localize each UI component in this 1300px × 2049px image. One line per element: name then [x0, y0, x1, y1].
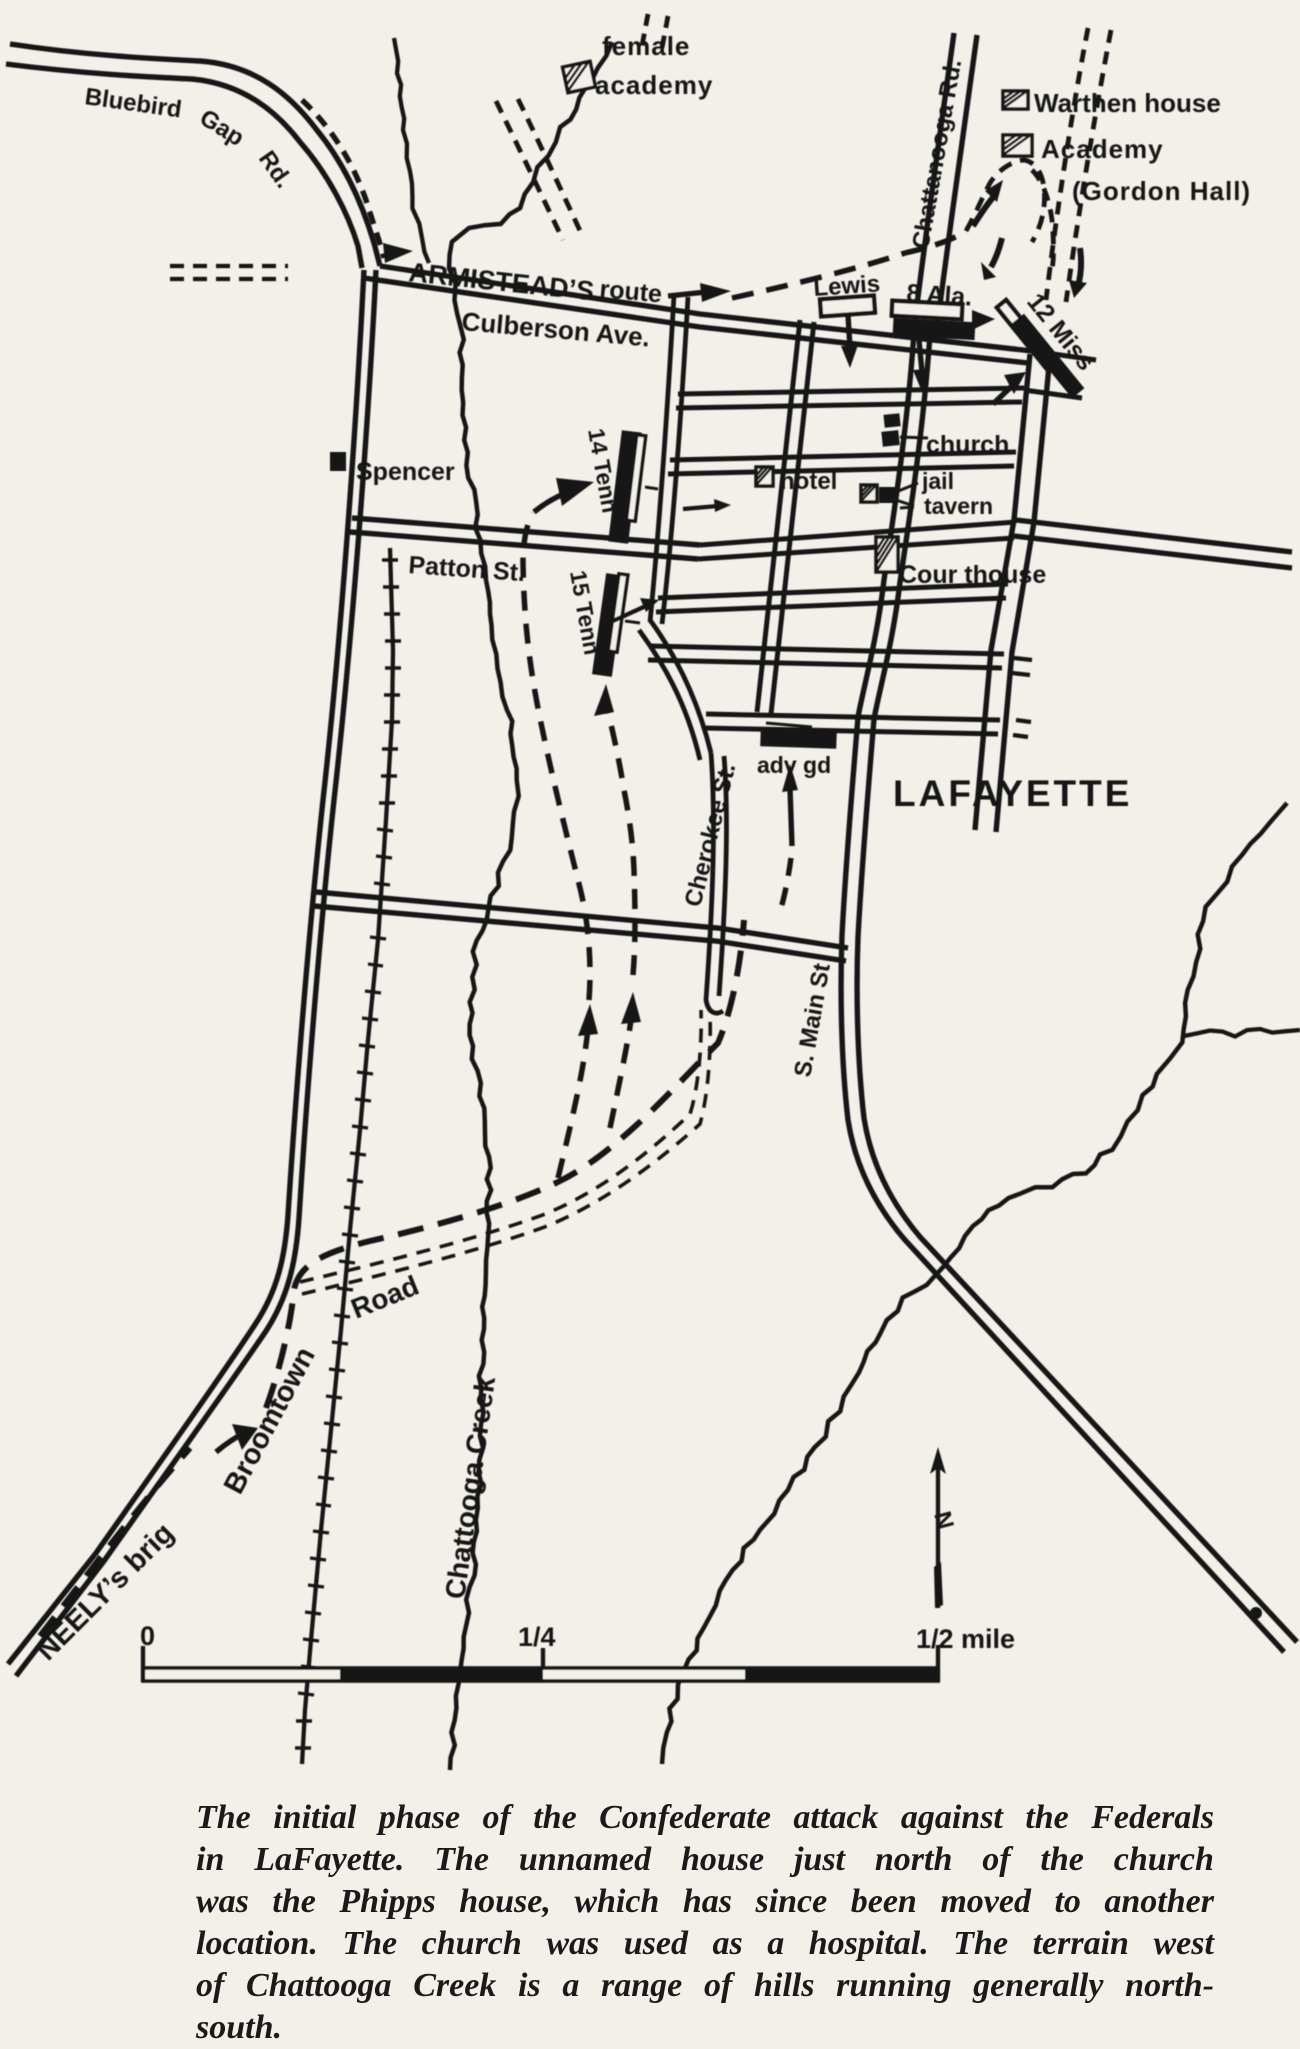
- svg-text:0: 0: [140, 1621, 155, 1651]
- svg-text:Lewis: Lewis: [813, 270, 881, 302]
- svg-text:8 Ala.: 8 Ala.: [906, 279, 974, 312]
- svg-text:N: N: [928, 1509, 959, 1533]
- svg-text:Cour thouse: Cour thouse: [899, 561, 1046, 589]
- svg-text:Warthen house: Warthen house: [1034, 88, 1221, 118]
- svg-text:Road: Road: [347, 1270, 424, 1325]
- svg-text:Academy: Academy: [1041, 134, 1164, 164]
- svg-text:church: church: [926, 431, 1009, 459]
- svg-text:S. Main St: S. Main St: [789, 961, 836, 1079]
- svg-text:female: female: [602, 31, 690, 61]
- svg-text:jail: jail: [921, 468, 954, 494]
- svg-text:Rd.: Rd.: [253, 146, 297, 193]
- svg-text:15 Tenn: 15 Tenn: [565, 568, 605, 656]
- svg-text:14 Tenn: 14 Tenn: [583, 426, 623, 514]
- svg-text:1/4: 1/4: [518, 1622, 556, 1652]
- svg-text:Chattooga Creek: Chattooga Creek: [439, 1374, 501, 1601]
- svg-text:route: route: [598, 275, 663, 308]
- svg-text:tavern: tavern: [924, 493, 993, 519]
- svg-text:adv gd: adv gd: [757, 752, 831, 778]
- svg-text:Broomtown: Broomtown: [218, 1342, 322, 1499]
- svg-text:Cherokee St.: Cherokee St.: [680, 761, 742, 910]
- svg-text:Patton St.: Patton St.: [408, 551, 526, 587]
- svg-text:Gap: Gap: [195, 104, 249, 152]
- svg-text:hotel: hotel: [780, 468, 837, 495]
- svg-text:LAFAYETTE: LAFAYETTE: [893, 773, 1132, 814]
- svg-text:Spencer: Spencer: [356, 458, 455, 486]
- svg-text:1/2 mile: 1/2 mile: [916, 1624, 1015, 1654]
- svg-text:Bluebird: Bluebird: [83, 83, 183, 123]
- svg-text:academy: academy: [595, 70, 713, 100]
- svg-text:(Gordon Hall): (Gordon Hall): [1072, 176, 1251, 206]
